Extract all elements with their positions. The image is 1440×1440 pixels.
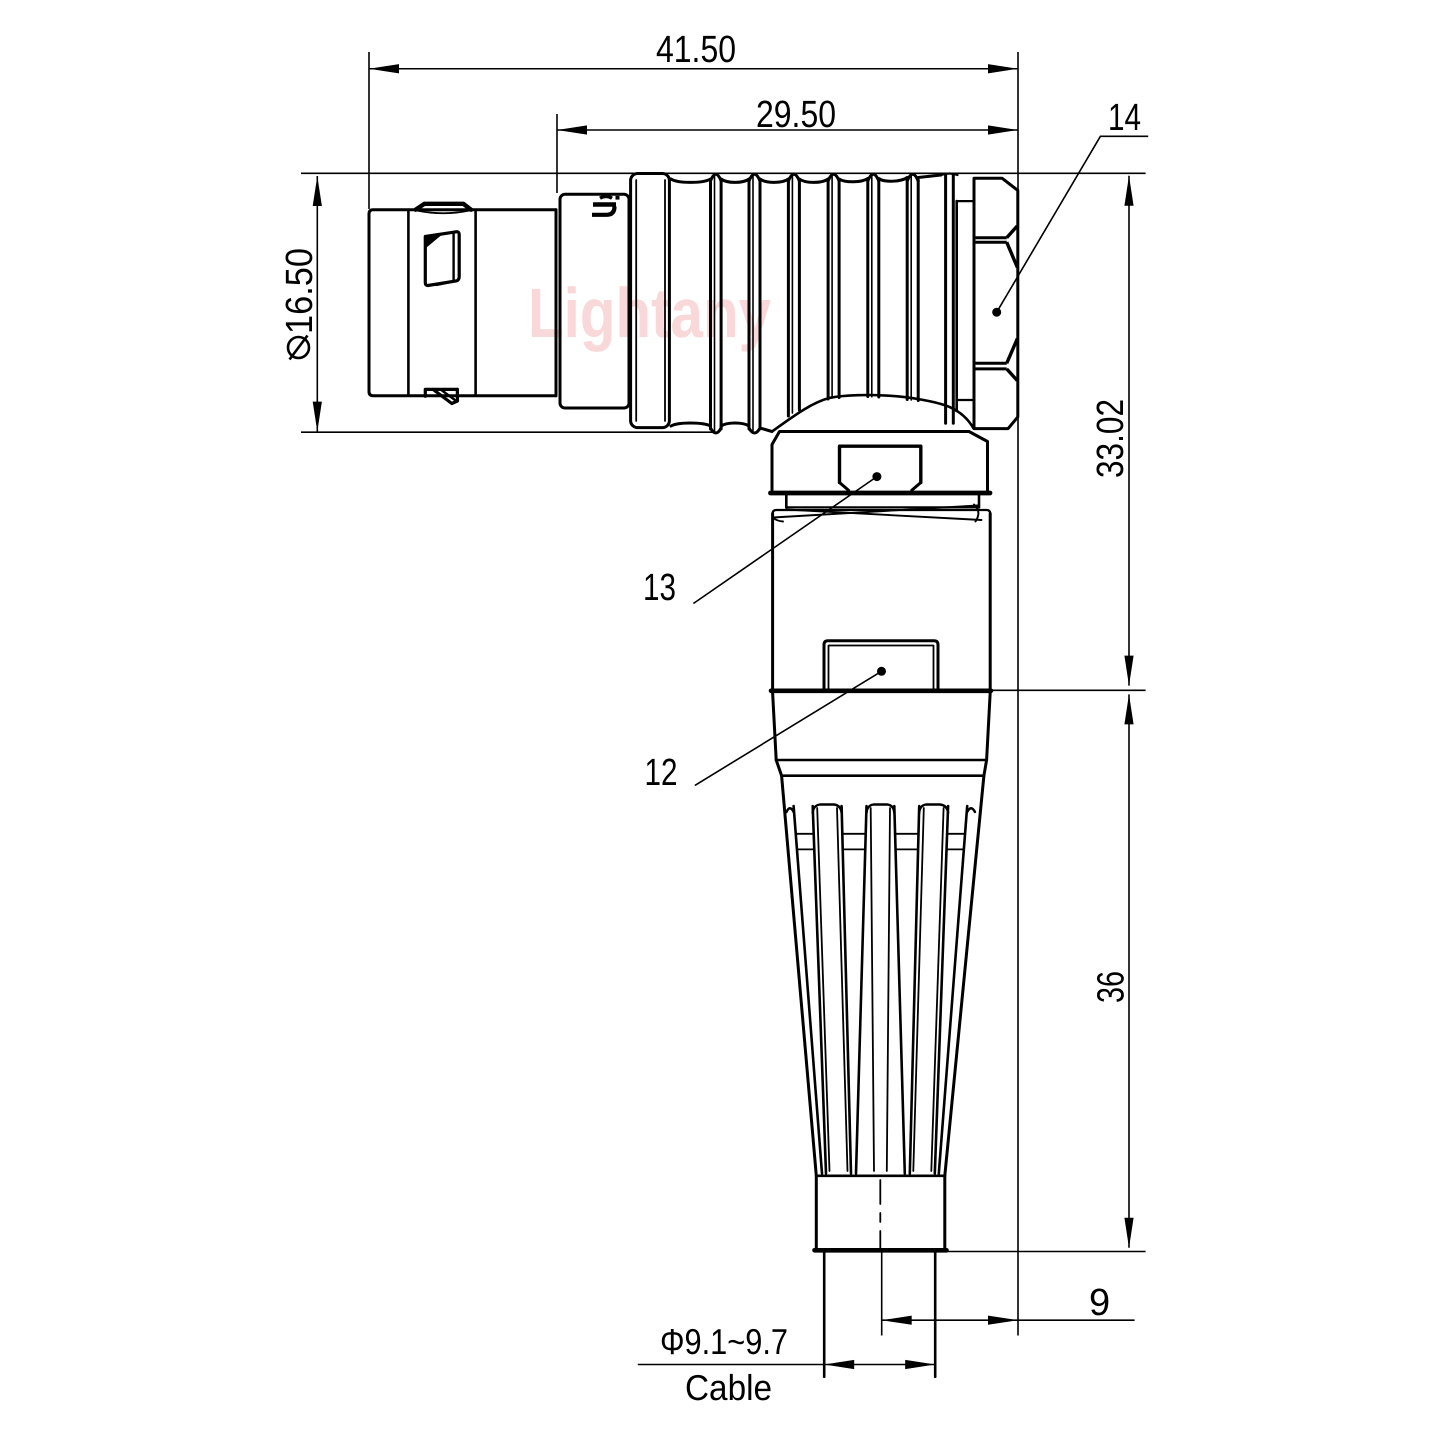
svg-text:33.02: 33.02 bbox=[1090, 399, 1132, 478]
svg-text:Cable: Cable bbox=[685, 1367, 772, 1408]
svg-text:Φ9.1~9.7: Φ9.1~9.7 bbox=[660, 1321, 788, 1362]
svg-text:41.50: 41.50 bbox=[656, 29, 736, 71]
svg-text:36: 36 bbox=[1091, 971, 1133, 1003]
svg-text:13: 13 bbox=[643, 567, 676, 609]
svg-text:9: 9 bbox=[1089, 1282, 1110, 1324]
svg-text:16.50: 16.50 bbox=[279, 248, 321, 334]
svg-text:29.50: 29.50 bbox=[756, 94, 836, 136]
svg-text:12: 12 bbox=[645, 752, 678, 794]
svg-text:Lightany: Lightany bbox=[528, 274, 771, 352]
svg-text:14: 14 bbox=[1108, 97, 1141, 139]
